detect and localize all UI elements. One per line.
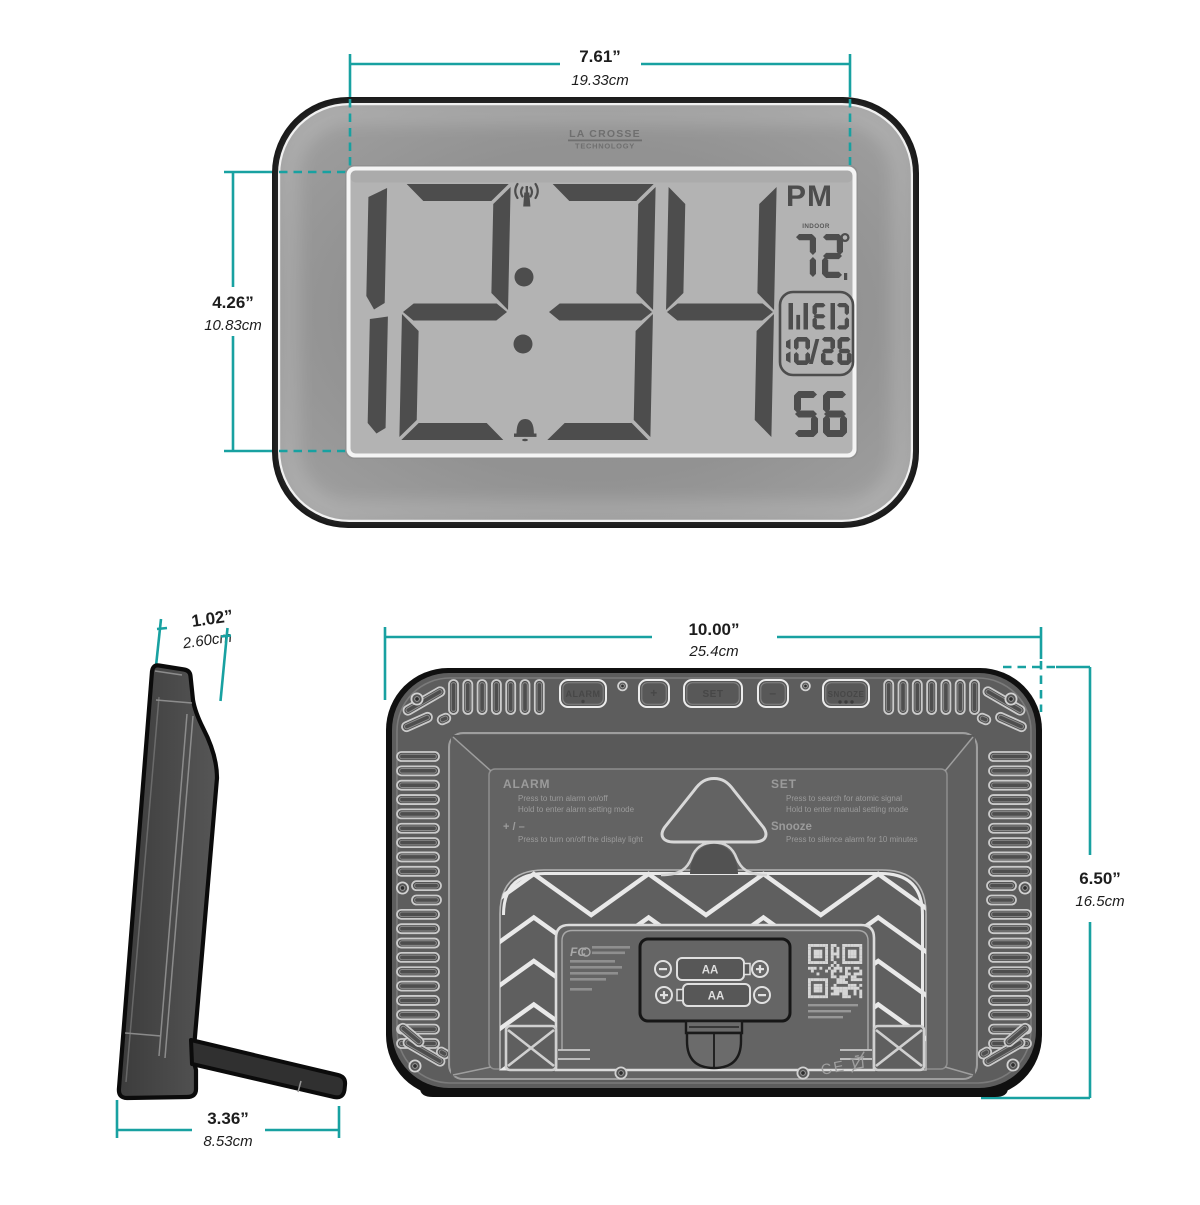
svg-text:INDOOR: INDOOR bbox=[802, 223, 830, 230]
svg-text:10.00”: 10.00” bbox=[688, 620, 739, 639]
svg-text:19.33cm: 19.33cm bbox=[571, 72, 629, 89]
svg-text:+ / –: + / – bbox=[503, 821, 525, 833]
svg-text:AA: AA bbox=[708, 991, 725, 1003]
svg-text:–: – bbox=[769, 686, 776, 700]
svg-text:Snooze: Snooze bbox=[771, 821, 812, 833]
svg-text:10.83cm: 10.83cm bbox=[204, 317, 262, 334]
svg-text:3.36”: 3.36” bbox=[207, 1109, 249, 1128]
svg-text:4.26”: 4.26” bbox=[212, 293, 254, 312]
svg-text:25.4cm: 25.4cm bbox=[688, 643, 738, 660]
svg-text:Press to turn alarm on/off: Press to turn alarm on/off bbox=[518, 794, 608, 803]
svg-text:Press to search for atomic sig: Press to search for atomic signal bbox=[786, 794, 902, 803]
svg-text:SET: SET bbox=[771, 777, 797, 791]
svg-text:LA CROSSE: LA CROSSE bbox=[569, 128, 641, 140]
svg-text:Press to silence alarm for 10: Press to silence alarm for 10 minutes bbox=[786, 835, 918, 844]
svg-text:Hold to enter manual setting m: Hold to enter manual setting mode bbox=[786, 805, 909, 814]
svg-text:Hold to enter alarm setting mo: Hold to enter alarm setting mode bbox=[518, 805, 635, 814]
svg-text:16.5cm: 16.5cm bbox=[1075, 893, 1124, 910]
svg-text:SNOOZE: SNOOZE bbox=[828, 690, 865, 699]
svg-text:8.53cm: 8.53cm bbox=[203, 1133, 252, 1150]
svg-text:Press to turn on/off the displ: Press to turn on/off the display light bbox=[518, 835, 644, 844]
svg-text:TECHNOLOGY: TECHNOLOGY bbox=[575, 142, 635, 151]
svg-text:SET: SET bbox=[703, 689, 724, 700]
svg-text:PM: PM bbox=[786, 180, 833, 213]
svg-text:ALARM: ALARM bbox=[503, 777, 550, 791]
svg-text:7.61”: 7.61” bbox=[579, 47, 621, 66]
svg-text:ALARM: ALARM bbox=[566, 689, 601, 699]
svg-text:AA: AA bbox=[702, 965, 719, 977]
svg-text:FC: FC bbox=[570, 945, 586, 959]
svg-text:+: + bbox=[650, 686, 658, 700]
svg-text:6.50”: 6.50” bbox=[1079, 869, 1121, 888]
